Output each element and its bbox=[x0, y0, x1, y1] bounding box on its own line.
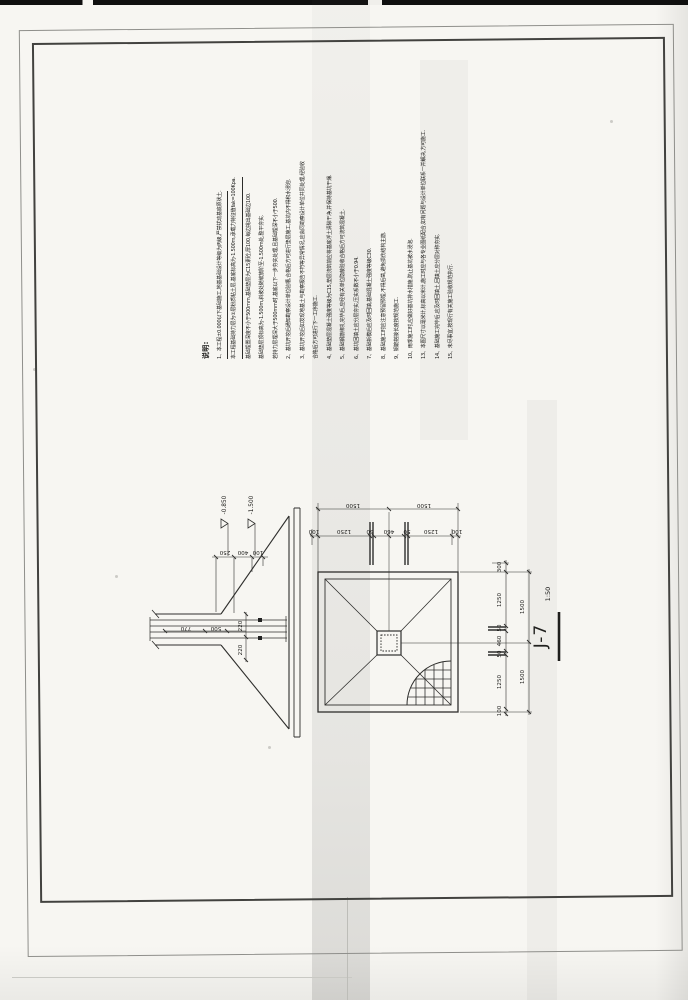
drawing-label: J-7 1:50 bbox=[531, 587, 559, 661]
dowel-bar-mark bbox=[258, 636, 262, 640]
dim-label: 250 bbox=[219, 549, 230, 555]
elevation-label: -1.500 bbox=[249, 495, 255, 514]
dim-label: 50 bbox=[403, 528, 411, 534]
dim-label: 1500 bbox=[520, 599, 526, 614]
dim-label: 500 bbox=[210, 625, 221, 631]
dim-label: 1250 bbox=[423, 528, 438, 534]
dim-label: 220 bbox=[238, 644, 244, 655]
dim-label: 770 bbox=[180, 625, 191, 631]
column-rebar-dots bbox=[381, 635, 397, 651]
dim-label: 1250 bbox=[497, 592, 503, 607]
detail-scale: 1:50 bbox=[544, 587, 552, 602]
scanned-drawing-sheet: 说明: 1、本工程±0.000以下基础施工,地基基础设计等级为丙级,严禁扰动基底… bbox=[0, 0, 688, 1000]
dim-label: 1250 bbox=[497, 674, 503, 689]
elevation-label: -0.850 bbox=[222, 495, 228, 514]
drawing-canvas: 220 220 770 500 250 400 100 -0.850 bbox=[0, 0, 688, 1000]
dim-label: 100 bbox=[308, 528, 319, 534]
dim-label: 400 bbox=[237, 549, 248, 555]
dowel-bar-mark bbox=[258, 618, 262, 622]
dim-label: 50 bbox=[497, 650, 503, 658]
dim-label: 100 bbox=[252, 549, 263, 555]
dim-label: 460 bbox=[497, 635, 503, 646]
dim-label: 220 bbox=[238, 620, 244, 631]
dim-label: 300 bbox=[497, 561, 503, 572]
dim-label: 50 bbox=[366, 528, 374, 534]
dim-label: 1500 bbox=[416, 502, 431, 508]
dim-label: 100 bbox=[497, 705, 503, 716]
detail-number: J-7 bbox=[531, 624, 551, 649]
elevation-marker: -0.850 bbox=[221, 495, 228, 556]
plan-view: 1500 1500 100 1250 50 460 50 1250 100 bbox=[308, 502, 532, 716]
section-view: 220 220 770 500 250 400 100 -0.850 bbox=[150, 495, 300, 737]
dim-label: 1500 bbox=[520, 669, 526, 684]
dim-label: 460 bbox=[383, 528, 394, 534]
dim-label: 50 bbox=[497, 624, 503, 632]
elevation-marker: -1.500 bbox=[248, 495, 255, 556]
dim-label: 100 bbox=[451, 528, 462, 534]
dim-label: 1500 bbox=[345, 502, 360, 508]
dim-label: 1250 bbox=[336, 528, 351, 534]
